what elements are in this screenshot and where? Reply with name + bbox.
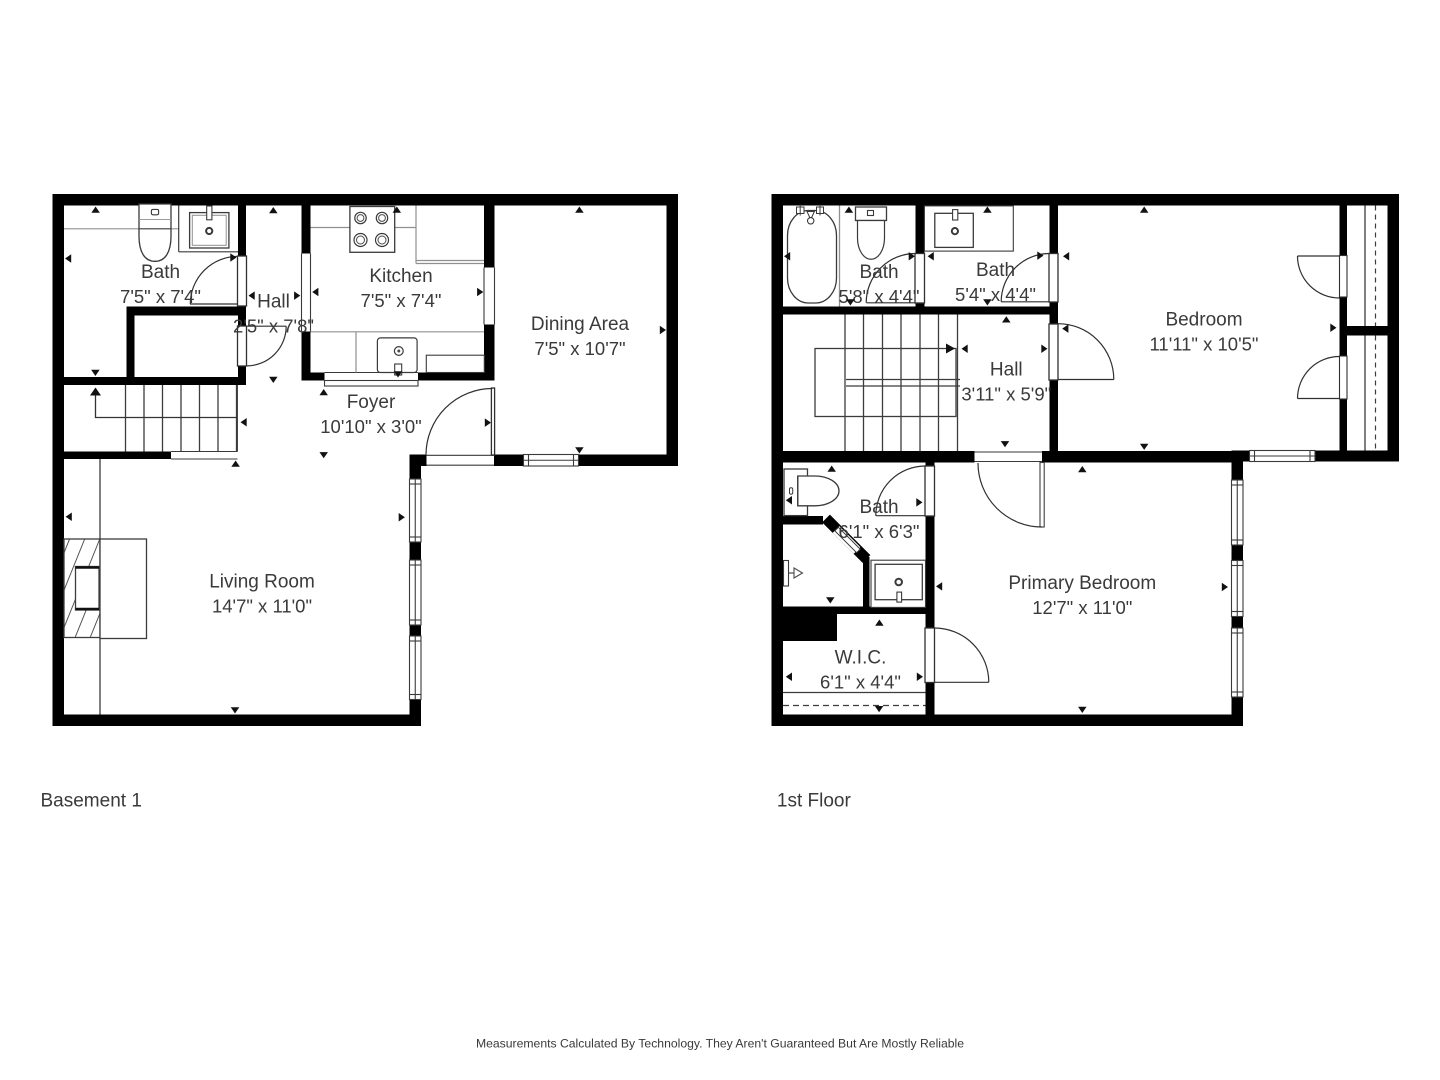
svg-text:14'7" x 11'0": 14'7" x 11'0" <box>212 596 312 617</box>
svg-text:6'1" x 4'4": 6'1" x 4'4" <box>820 672 901 693</box>
svg-text:7'5" x 10'7": 7'5" x 10'7" <box>534 338 625 359</box>
svg-text:Bedroom: Bedroom <box>1165 310 1242 331</box>
svg-text:W.I.C.: W.I.C. <box>835 648 887 669</box>
svg-text:Bath: Bath <box>976 260 1015 281</box>
svg-text:7'5" x 7'4": 7'5" x 7'4" <box>120 286 201 307</box>
svg-text:12'7" x 11'0": 12'7" x 11'0" <box>1032 597 1132 618</box>
svg-text:3'11" x 5'9": 3'11" x 5'9" <box>961 383 1051 404</box>
svg-text:Bath: Bath <box>859 262 898 283</box>
svg-text:Foyer: Foyer <box>347 392 396 413</box>
svg-text:Living Room: Living Room <box>209 572 315 593</box>
svg-text:6'1" x 6'3": 6'1" x 6'3" <box>839 521 920 542</box>
svg-text:7'5" x 7'4": 7'5" x 7'4" <box>361 290 442 311</box>
svg-text:11'11" x 10'5": 11'11" x 10'5" <box>1149 334 1258 355</box>
svg-text:Hall: Hall <box>990 359 1023 380</box>
svg-text:Hall: Hall <box>257 292 290 313</box>
svg-text:2'5" x 7'8": 2'5" x 7'8" <box>233 316 314 337</box>
svg-text:Bath: Bath <box>141 262 180 283</box>
svg-text:Basement 1: Basement 1 <box>41 791 142 812</box>
svg-text:Measurements Calculated By Tec: Measurements Calculated By Technology. T… <box>476 1037 964 1051</box>
svg-text:Primary Bedroom: Primary Bedroom <box>1008 573 1156 594</box>
svg-text:Bath: Bath <box>859 497 898 518</box>
svg-text:10'10" x 3'0": 10'10" x 3'0" <box>320 416 421 437</box>
svg-text:5'4" x 4'4": 5'4" x 4'4" <box>955 284 1036 305</box>
svg-text:Kitchen: Kitchen <box>369 266 432 287</box>
svg-text:1st Floor: 1st Floor <box>777 791 852 812</box>
svg-text:Dining Area: Dining Area <box>531 314 630 335</box>
